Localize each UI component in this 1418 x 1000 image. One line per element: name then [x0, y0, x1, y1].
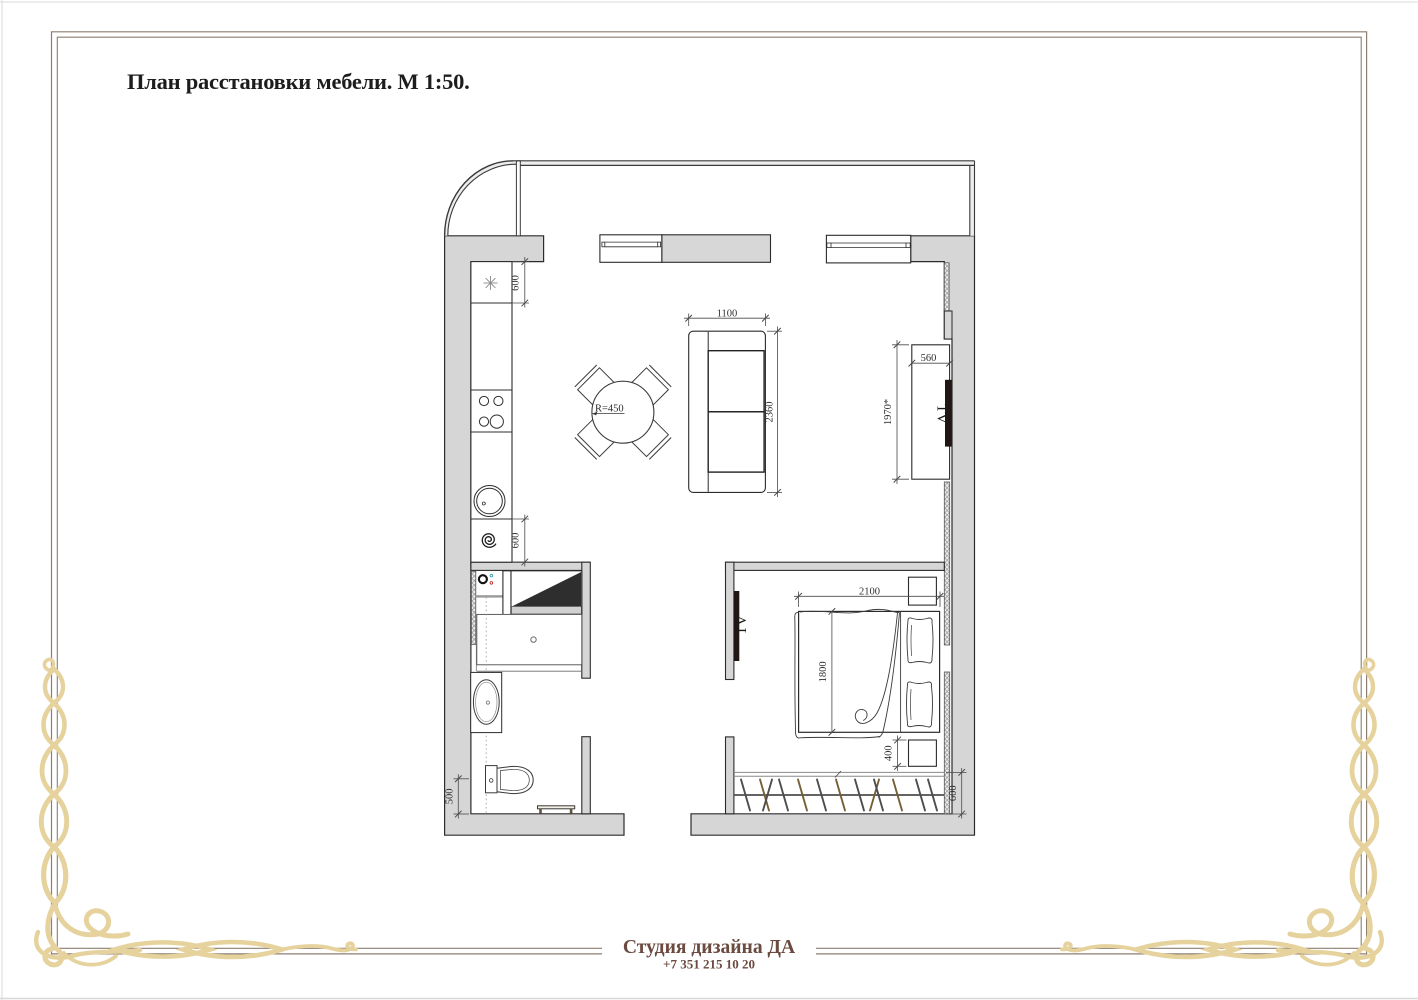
svg-text:600: 600 — [948, 785, 959, 801]
svg-text:1800: 1800 — [818, 661, 829, 682]
svg-text:Студия дизайна ДА: Студия дизайна ДА — [623, 937, 795, 958]
svg-text:560: 560 — [921, 353, 937, 364]
svg-text:2360: 2360 — [765, 402, 776, 423]
svg-text:2100: 2100 — [859, 586, 880, 597]
svg-text:План расстановки мебели. М 1:5: План расстановки мебели. М 1:50. — [127, 69, 469, 94]
svg-text:500: 500 — [444, 789, 455, 805]
svg-text:R=450: R=450 — [595, 404, 624, 415]
svg-text:TV: TV — [934, 404, 950, 424]
svg-text:1100: 1100 — [717, 308, 738, 319]
svg-text:400: 400 — [884, 745, 895, 761]
svg-text:1970*: 1970* — [883, 399, 894, 425]
svg-text:TV: TV — [734, 615, 750, 635]
svg-text:600: 600 — [511, 533, 522, 549]
svg-text:+7 351 215 10 20: +7 351 215 10 20 — [663, 957, 755, 972]
svg-text:600: 600 — [511, 275, 522, 291]
